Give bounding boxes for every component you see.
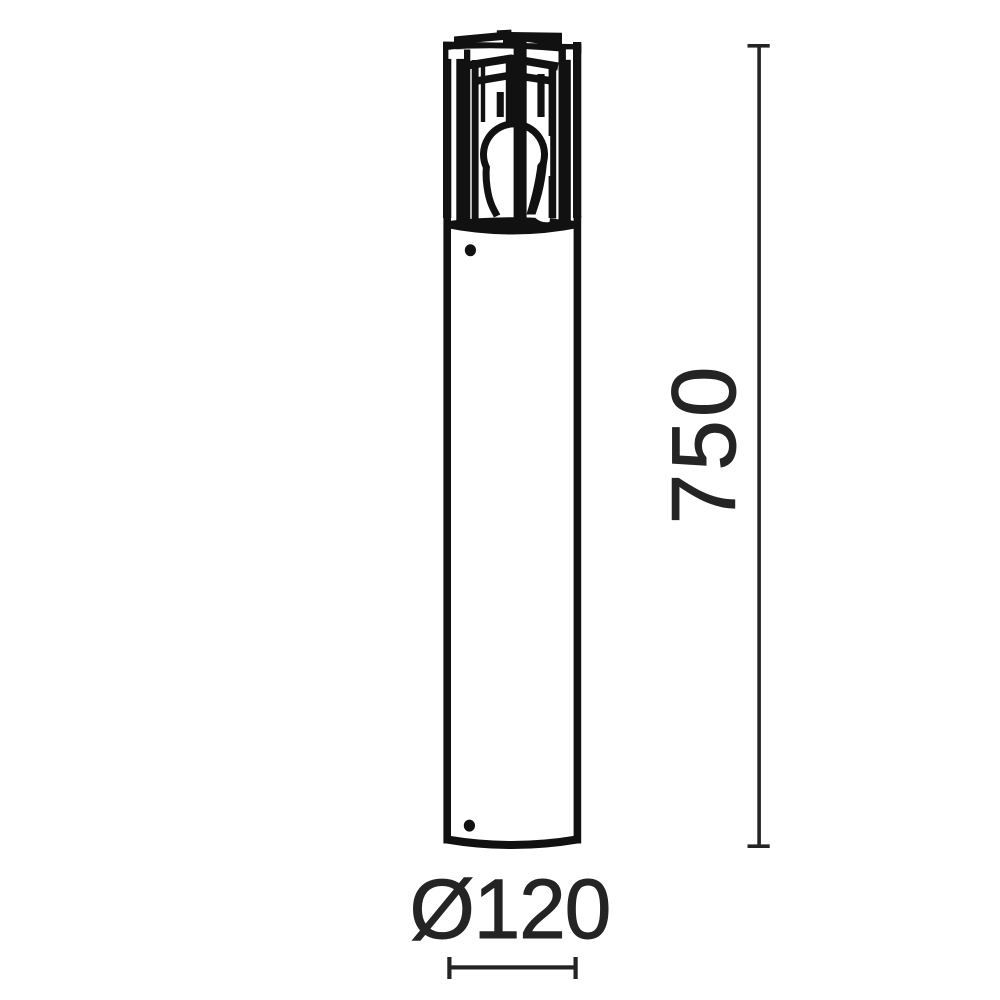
svg-text:750: 750: [654, 363, 755, 524]
svg-text:Ø120: Ø120: [409, 862, 610, 956]
